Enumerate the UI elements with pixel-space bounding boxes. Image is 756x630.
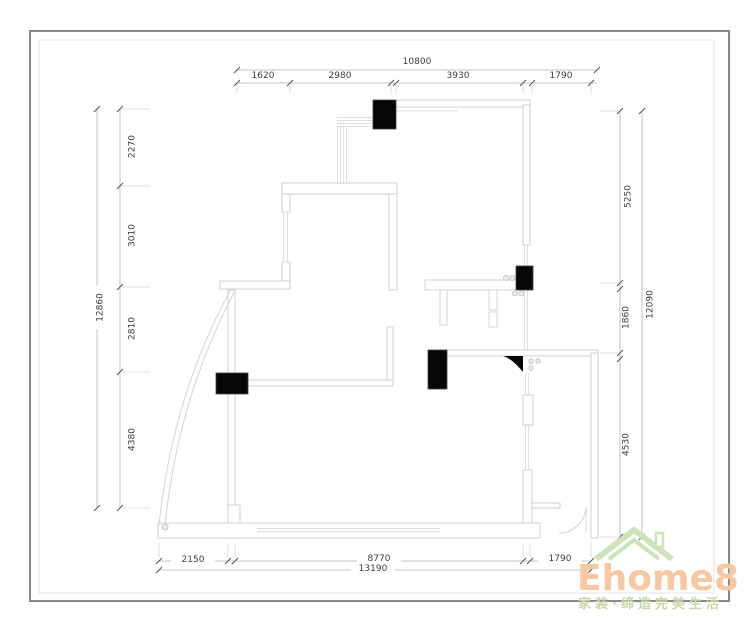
dim-bottom-total: 13190 xyxy=(351,564,395,575)
flue-box-left xyxy=(216,373,248,394)
balcony-arc xyxy=(159,291,235,525)
flue-box-center xyxy=(428,350,447,389)
extension-lines xyxy=(122,85,618,557)
window-lines xyxy=(257,111,529,532)
dimension-ticks xyxy=(94,67,645,573)
dimension-lines xyxy=(97,70,642,570)
dim-right-seg-1: 5250 xyxy=(624,175,635,219)
flue-box-top xyxy=(373,100,396,129)
floorplan-sheet: 10800 1620 2980 3930 1790 12860 2270 301… xyxy=(0,0,756,630)
logo-brand-text: Ehome8 xyxy=(577,558,756,600)
dim-bottom-seg-1: 2150 xyxy=(171,555,215,566)
dim-left-total: 12860 xyxy=(96,286,107,330)
dim-top-seg-2: 2980 xyxy=(318,71,362,82)
counter-table xyxy=(425,280,520,327)
roof-icon xyxy=(596,530,672,559)
logo-slogan-text: 家装·缔造完美生活 xyxy=(578,597,756,613)
dim-right-seg-3: 4530 xyxy=(622,423,633,467)
dim-right-total: 12090 xyxy=(646,283,657,327)
dim-left-seg-4: 4380 xyxy=(128,418,139,462)
entry-door-swing xyxy=(559,506,586,533)
dim-left-seg-2: 3010 xyxy=(128,214,139,258)
wall-layer xyxy=(158,100,598,538)
dim-top-seg-1: 1620 xyxy=(241,71,285,82)
door-direction-triangle xyxy=(503,356,523,372)
dim-top-total: 10800 xyxy=(395,57,439,68)
dim-left-seg-3: 2810 xyxy=(128,307,139,351)
floorplan-drawing xyxy=(0,0,756,630)
flue-box-right xyxy=(516,266,533,290)
dim-right-seg-2: 1860 xyxy=(622,296,633,340)
dim-bottom-seg-3: 1790 xyxy=(538,554,582,565)
dim-top-seg-3: 3930 xyxy=(436,71,480,82)
dim-left-seg-1: 2270 xyxy=(128,125,139,169)
dim-top-seg-4: 1790 xyxy=(539,71,583,82)
